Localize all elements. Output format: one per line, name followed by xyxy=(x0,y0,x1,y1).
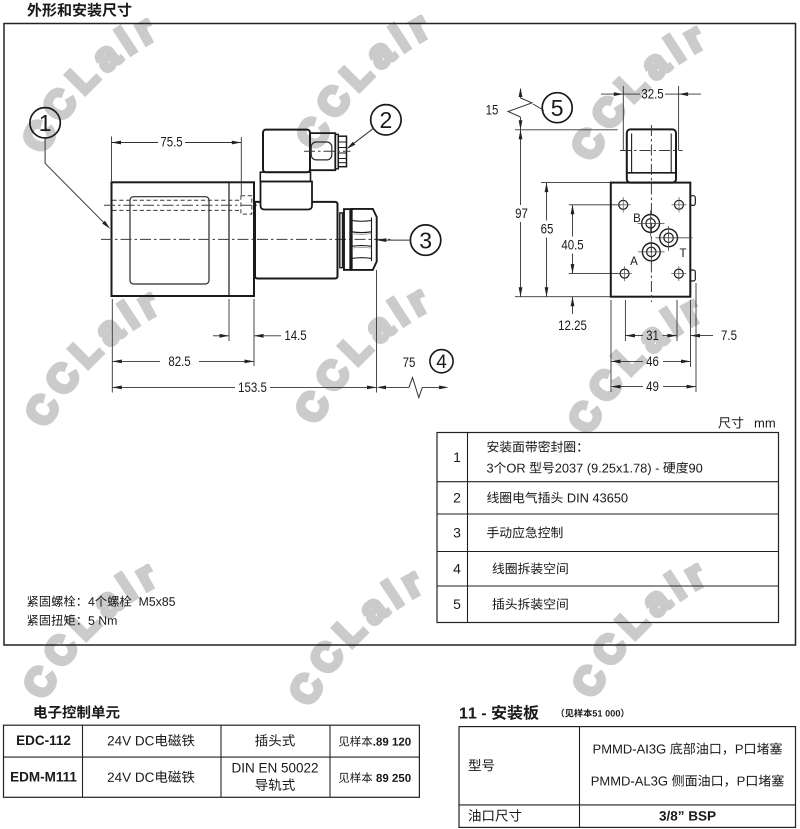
svg-text:EDC-112: EDC-112 xyxy=(16,733,71,748)
svg-text:4: 4 xyxy=(436,352,447,373)
svg-text:CCLair: CCLair xyxy=(15,551,169,706)
svg-text:CCLair: CCLair xyxy=(563,13,717,168)
svg-text:5: 5 xyxy=(551,95,564,121)
svg-text:1: 1 xyxy=(39,110,52,136)
svg-text:82.5: 82.5 xyxy=(168,353,190,369)
svg-text:65: 65 xyxy=(541,221,554,237)
svg-text:46: 46 xyxy=(646,353,659,369)
svg-text:14.5: 14.5 xyxy=(284,327,306,343)
svg-text:CCLair: CCLair xyxy=(564,550,718,705)
svg-text:40.5: 40.5 xyxy=(561,236,583,252)
svg-text:75: 75 xyxy=(403,354,416,370)
svg-text:2: 2 xyxy=(380,107,393,133)
svg-text:CCLair: CCLair xyxy=(560,286,714,441)
svg-text:97: 97 xyxy=(515,205,528,221)
svg-text:153.5: 153.5 xyxy=(238,379,267,395)
svg-text:DIN EN 50022: DIN EN 50022 xyxy=(231,760,318,775)
svg-text:12.25: 12.25 xyxy=(558,317,587,333)
svg-text:3: 3 xyxy=(453,525,461,541)
svg-text:T: T xyxy=(679,248,686,260)
svg-text:A: A xyxy=(630,256,638,268)
svg-text:3: 3 xyxy=(419,227,432,253)
svg-text:49: 49 xyxy=(646,378,659,394)
svg-text:7.5: 7.5 xyxy=(721,327,737,343)
svg-text:4: 4 xyxy=(453,561,461,577)
svg-text:CCLair: CCLair xyxy=(287,276,441,431)
svg-text:CCLair: CCLair xyxy=(17,279,171,434)
svg-text:EDM-M111: EDM-M111 xyxy=(10,770,77,785)
svg-text:75.5: 75.5 xyxy=(160,133,182,149)
svg-text:mm: mm xyxy=(754,416,776,431)
svg-text:5: 5 xyxy=(453,596,461,612)
svg-text:15: 15 xyxy=(486,101,499,117)
svg-text:CCLair: CCLair xyxy=(281,558,435,713)
svg-text:B: B xyxy=(633,213,641,225)
svg-text:32.5: 32.5 xyxy=(641,86,663,102)
svg-text:1: 1 xyxy=(453,449,461,465)
svg-text:2: 2 xyxy=(453,490,461,506)
svg-text:31: 31 xyxy=(646,327,659,343)
